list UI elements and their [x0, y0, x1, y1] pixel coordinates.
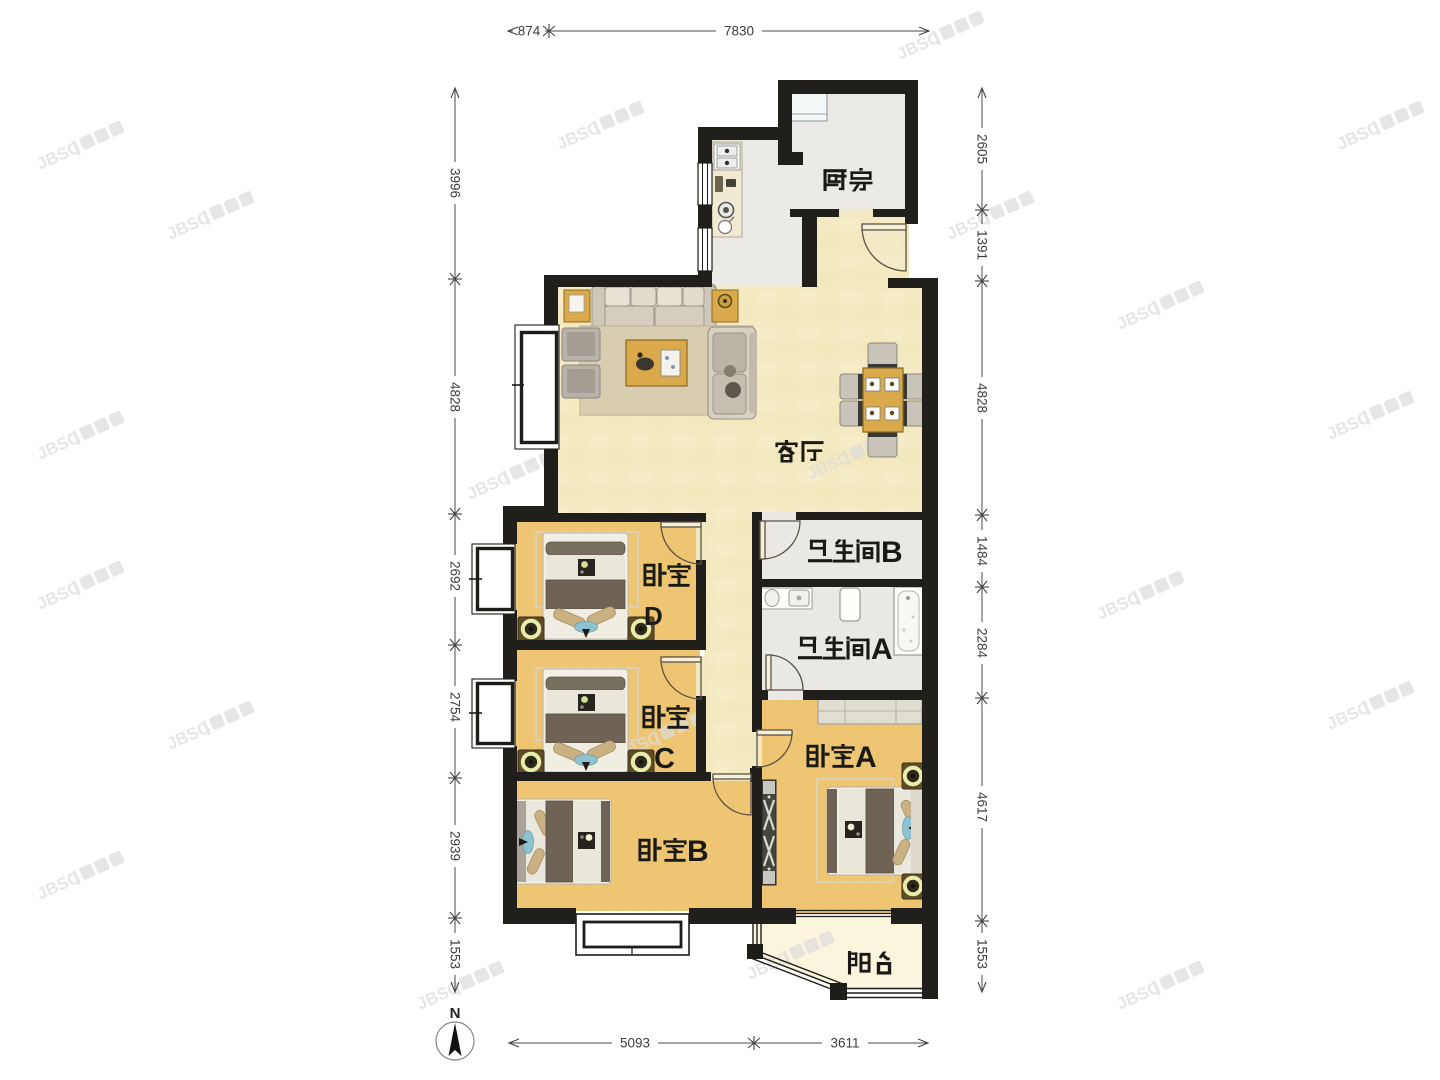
svg-text:B: B — [687, 835, 709, 868]
svg-text:4617: 4617 — [975, 792, 990, 822]
svg-text:C: C — [654, 743, 675, 775]
svg-text:N: N — [450, 1005, 461, 1022]
svg-text:4828: 4828 — [975, 383, 990, 413]
svg-text:2605: 2605 — [975, 134, 990, 164]
svg-text:5093: 5093 — [620, 1036, 650, 1051]
svg-text:7830: 7830 — [724, 24, 754, 39]
svg-text:A: A — [855, 741, 877, 774]
svg-text:D: D — [644, 601, 663, 631]
svg-text:3996: 3996 — [448, 168, 463, 198]
svg-text:1553: 1553 — [448, 939, 463, 969]
svg-text:3611: 3611 — [830, 1036, 859, 1051]
svg-text:2939: 2939 — [448, 831, 463, 861]
svg-text:2692: 2692 — [448, 561, 463, 591]
svg-text:874: 874 — [518, 24, 541, 39]
svg-text:1484: 1484 — [975, 536, 990, 567]
svg-text:1391: 1391 — [975, 230, 990, 260]
svg-text:2754: 2754 — [448, 692, 463, 723]
svg-text:2284: 2284 — [975, 628, 990, 659]
svg-text:B: B — [881, 536, 903, 569]
svg-text:4828: 4828 — [448, 382, 463, 412]
svg-text:A: A — [871, 633, 893, 666]
svg-text:1553: 1553 — [975, 939, 990, 969]
